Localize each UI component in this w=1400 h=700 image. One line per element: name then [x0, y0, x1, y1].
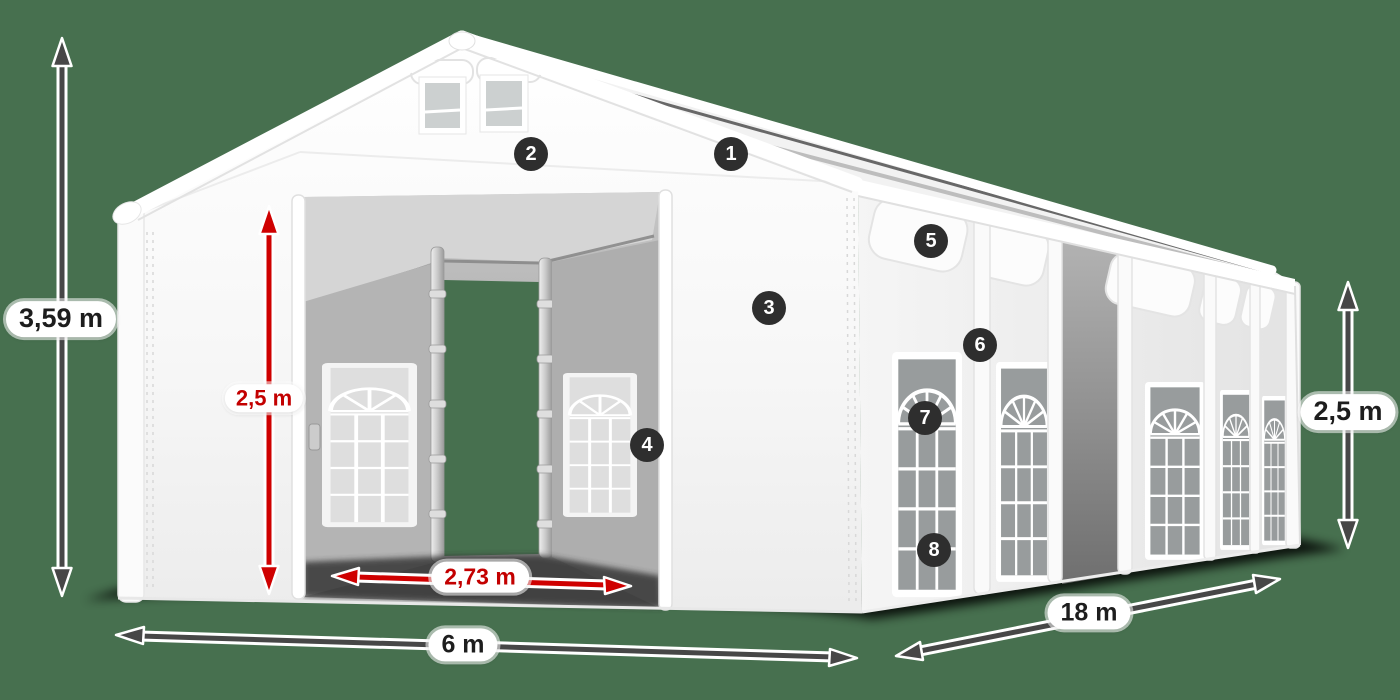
- tent-illustration: [0, 0, 1400, 700]
- label-side-length: 18 m: [1048, 596, 1131, 629]
- callout-2: 2: [514, 137, 548, 171]
- callout-1: 1: [714, 137, 748, 171]
- label-door-height: 2,5 m: [225, 384, 303, 412]
- label-door-width: 2,73 m: [431, 562, 529, 593]
- label-total-height: 3,59 m: [6, 301, 116, 337]
- callout-8: 8: [917, 533, 951, 567]
- callout-7: 7: [908, 401, 942, 435]
- door-handle: [309, 424, 320, 450]
- callout-4: 4: [630, 428, 664, 462]
- product-dimension-diagram: 3,59 m 2,5 m 2,73 m 6 m 18 m 2,5 m 1 2 3…: [0, 0, 1400, 700]
- label-front-width: 6 m: [428, 628, 497, 661]
- callout-6: 6: [963, 328, 997, 362]
- right-door-edge: [659, 190, 672, 610]
- rear-opening: [444, 280, 540, 556]
- callout-3: 3: [752, 291, 786, 325]
- door-opening: [303, 192, 662, 608]
- label-side-height: 2,5 m: [1300, 394, 1395, 430]
- callout-5: 5: [914, 224, 948, 258]
